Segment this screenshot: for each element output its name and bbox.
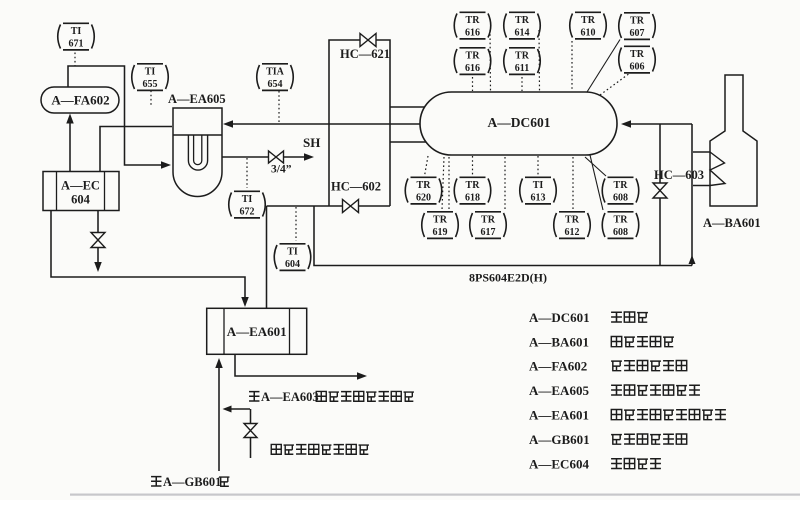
- svg-text:A—EC: A—EC: [61, 179, 100, 193]
- svg-text:A—FA602: A—FA602: [529, 359, 587, 374]
- svg-text:A—EA601: A—EA601: [227, 324, 287, 339]
- svg-text:TI: TI: [71, 26, 82, 37]
- svg-text:A—DC601: A—DC601: [529, 310, 590, 325]
- svg-text:HC—603: HC—603: [654, 168, 704, 182]
- svg-text:613: 613: [531, 192, 546, 203]
- svg-text:TI: TI: [242, 194, 253, 205]
- svg-text:616: 616: [465, 27, 480, 38]
- svg-text:A—EC604: A—EC604: [529, 457, 589, 472]
- svg-text:TR: TR: [515, 15, 530, 26]
- svg-text:A—GB601: A—GB601: [529, 432, 590, 447]
- svg-text:604: 604: [285, 259, 300, 270]
- svg-text:TR: TR: [614, 214, 629, 225]
- svg-text:610: 610: [581, 27, 596, 38]
- svg-text:614: 614: [515, 27, 530, 38]
- svg-text:TR: TR: [466, 180, 481, 191]
- svg-text:TI: TI: [533, 180, 544, 191]
- svg-text:HC—621: HC—621: [340, 47, 390, 61]
- svg-text:618: 618: [465, 192, 480, 203]
- svg-text:TR: TR: [515, 50, 530, 61]
- svg-text:TR: TR: [565, 214, 580, 225]
- svg-text:TR: TR: [466, 15, 481, 26]
- svg-text:A—EA603: A—EA603: [261, 390, 319, 404]
- svg-text:A—EA601: A—EA601: [529, 408, 589, 423]
- svg-text:A—BA601: A—BA601: [703, 216, 761, 230]
- svg-text:TIA: TIA: [266, 66, 285, 77]
- svg-text:616: 616: [465, 63, 480, 74]
- svg-text:A—FA602: A—FA602: [51, 93, 109, 108]
- svg-text:654: 654: [268, 79, 283, 90]
- svg-text:TR: TR: [466, 50, 481, 61]
- svg-text:611: 611: [515, 63, 529, 74]
- svg-text:TR: TR: [630, 49, 645, 60]
- svg-text:SH: SH: [303, 135, 320, 150]
- svg-text:606: 606: [630, 61, 645, 72]
- svg-text:TI: TI: [145, 66, 156, 77]
- svg-text:3/4”: 3/4”: [271, 164, 292, 176]
- svg-text:TR: TR: [433, 214, 448, 225]
- svg-text:A—DC601: A—DC601: [488, 115, 551, 130]
- svg-text:617: 617: [481, 227, 496, 238]
- svg-text:TI: TI: [287, 246, 298, 257]
- svg-text:608: 608: [613, 192, 628, 203]
- svg-text:671: 671: [69, 38, 84, 49]
- svg-text:A—BA601: A—BA601: [529, 335, 589, 350]
- svg-text:607: 607: [630, 28, 645, 39]
- svg-text:A—EA605: A—EA605: [529, 383, 589, 398]
- svg-text:655: 655: [143, 79, 158, 90]
- svg-text:A—GB601: A—GB601: [163, 475, 221, 489]
- svg-text:TR: TR: [630, 15, 645, 26]
- svg-text:8PS604E2D(H): 8PS604E2D(H): [469, 271, 547, 285]
- svg-text:TR: TR: [417, 180, 432, 191]
- svg-text:604: 604: [71, 193, 91, 207]
- svg-text:A—EA605: A—EA605: [168, 92, 226, 106]
- svg-text:HC—602: HC—602: [331, 180, 381, 194]
- svg-text:TR: TR: [614, 180, 629, 191]
- svg-text:TR: TR: [481, 214, 496, 225]
- svg-text:619: 619: [433, 227, 448, 238]
- svg-text:620: 620: [416, 192, 431, 203]
- svg-text:TR: TR: [581, 15, 596, 26]
- svg-text:672: 672: [240, 206, 255, 217]
- svg-text:612: 612: [565, 227, 580, 238]
- svg-text:608: 608: [613, 227, 628, 238]
